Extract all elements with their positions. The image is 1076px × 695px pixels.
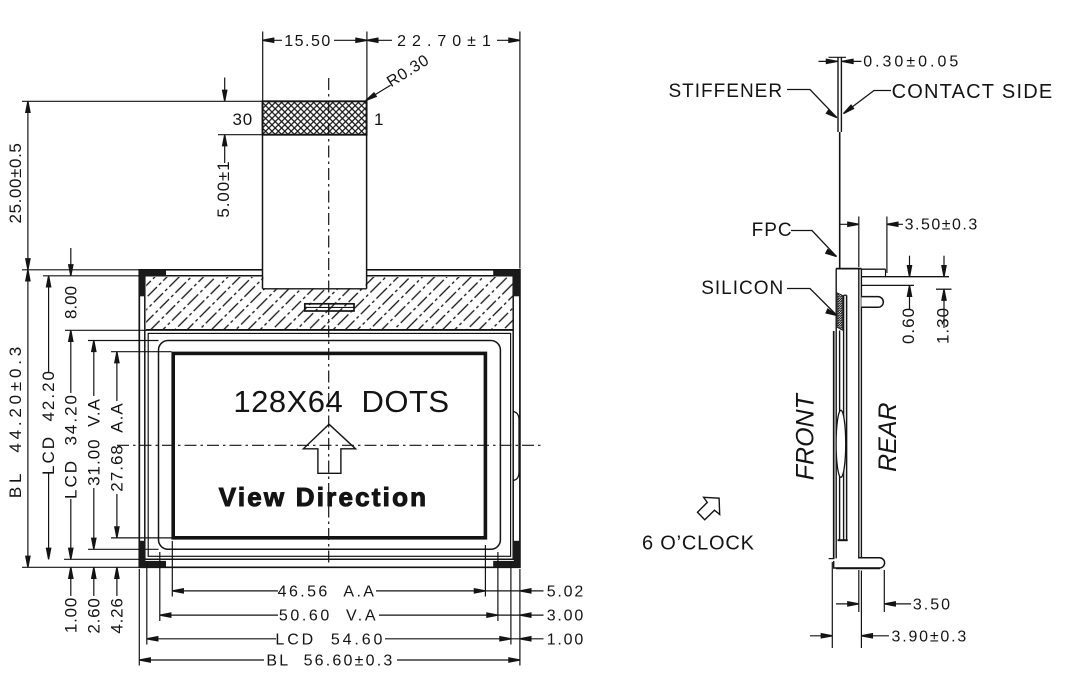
svg-text:0.60: 0.60 xyxy=(899,307,918,344)
svg-text:3.50±0.3: 3.50±0.3 xyxy=(905,216,979,233)
svg-text:LCD 34.20: LCD 34.20 xyxy=(61,393,80,499)
svg-text:CONTACT SIDE: CONTACT SIDE xyxy=(892,81,1054,103)
svg-text:1.30: 1.30 xyxy=(933,307,952,344)
svg-text:5.00±1: 5.00±1 xyxy=(214,160,233,217)
svg-text:BL 44.20±0.3: BL 44.20±0.3 xyxy=(6,343,25,498)
svg-text:BL 56.60±0.3: BL 56.60±0.3 xyxy=(266,653,394,670)
svg-text:31.00 V.A: 31.00 V.A xyxy=(84,398,103,486)
svg-text:1.00: 1.00 xyxy=(547,631,585,648)
svg-text:3.00: 3.00 xyxy=(547,608,585,625)
svg-text:View Direction: View Direction xyxy=(219,482,429,512)
svg-text:128X64 DOTS: 128X64 DOTS xyxy=(233,384,449,419)
svg-text:3.50: 3.50 xyxy=(913,596,952,613)
svg-text:5.02: 5.02 xyxy=(547,583,585,600)
svg-text:1: 1 xyxy=(374,110,384,129)
svg-text:FRONT: FRONT xyxy=(792,392,820,480)
svg-text:LCD 54.60: LCD 54.60 xyxy=(275,631,385,648)
svg-text:46.56 A.A: 46.56 A.A xyxy=(278,583,377,600)
svg-text:1.00: 1.00 xyxy=(61,597,80,633)
svg-text:0.30±0.05: 0.30±0.05 xyxy=(863,53,961,70)
svg-text:25.00±0.5: 25.00±0.5 xyxy=(6,143,25,224)
svg-text:R0.30: R0.30 xyxy=(384,52,433,91)
svg-text:FPC: FPC xyxy=(752,220,793,241)
svg-text:30: 30 xyxy=(233,110,254,129)
svg-text:8.00: 8.00 xyxy=(61,286,80,319)
svg-text:3.90±0.3: 3.90±0.3 xyxy=(892,628,969,645)
svg-text:6 O’CLOCK: 6 O’CLOCK xyxy=(642,533,755,555)
svg-text:SILICON: SILICON xyxy=(701,278,784,299)
svg-text:REAR: REAR xyxy=(874,402,902,471)
svg-text:50.60 V.A: 50.60 V.A xyxy=(279,608,378,625)
svg-text:LCD 42.20: LCD 42.20 xyxy=(39,369,58,475)
svg-text:15.50: 15.50 xyxy=(284,33,332,50)
svg-text:4.26: 4.26 xyxy=(108,597,127,633)
svg-text:STIFFENER: STIFFENER xyxy=(669,81,784,102)
svg-text:27.68 A.A: 27.68 A.A xyxy=(108,402,127,491)
svg-text:2.60: 2.60 xyxy=(84,597,103,633)
svg-text:22.70±1: 22.70±1 xyxy=(397,33,497,50)
